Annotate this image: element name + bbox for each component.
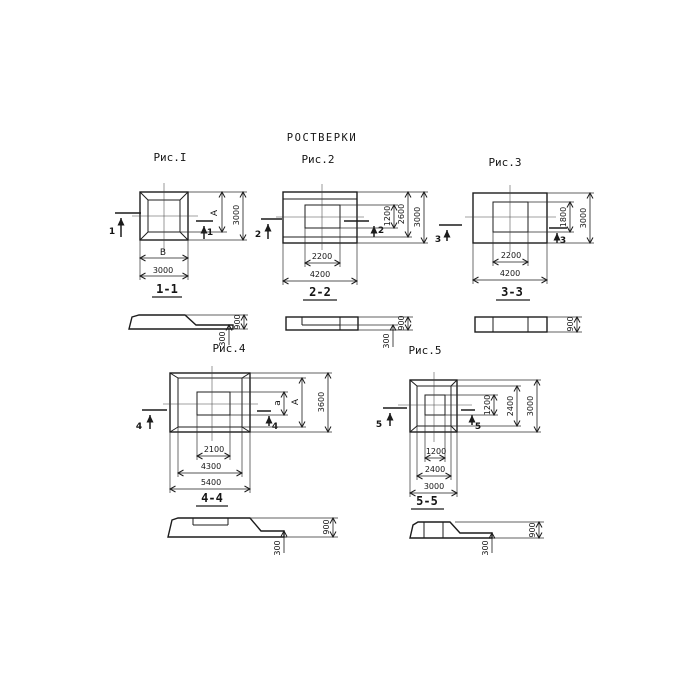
fig4-dim-right-middle: А xyxy=(291,398,301,405)
fig5-witness-lines xyxy=(410,380,541,497)
fig1-dim-bottom-outer: 3000 xyxy=(153,266,173,275)
fig4-cut-marks: 4 4 xyxy=(136,410,278,432)
fig2-dim-right-middle: 2600 xyxy=(397,204,406,224)
fig2-dim-bottom-outer: 4200 xyxy=(310,270,330,279)
fig2-section-recess xyxy=(302,317,340,330)
fig3-section-view: 900 xyxy=(475,316,582,332)
fig1-section-profile xyxy=(129,315,233,329)
fig3-dim-right-inner: 1800 xyxy=(559,207,568,227)
fig5-cut-marks: 5 5 xyxy=(376,408,481,432)
fig2-cut-label-left: 2 xyxy=(255,230,261,240)
fig5-cut-label-left: 5 xyxy=(376,420,382,430)
blueprint-canvas: РОСТВЕРКИ Рис.I 1 1 xyxy=(0,0,700,700)
fig5-section-view: 900 300 xyxy=(410,522,544,556)
fig4-cut-label-left: 4 xyxy=(136,422,142,432)
fig3-dimensions: 1800 3000 2200 4200 xyxy=(473,193,594,284)
fig2-section-title: 2-2 xyxy=(309,285,331,299)
fig4-dim-bottom-outer: 5400 xyxy=(201,478,221,487)
fig1-caption: Рис.I xyxy=(153,151,186,164)
fig1-dim-bottom-inner: В xyxy=(160,248,166,258)
fig5-dim-bottom-middle: 2400 xyxy=(425,465,445,474)
fig4-section-title: 4-4 xyxy=(201,491,223,505)
fig5-dim-right-inner: 1200 xyxy=(483,395,492,415)
fig2-cut-label-inner: 2 xyxy=(378,226,384,236)
fig2-centerlines xyxy=(276,184,364,250)
fig1-dim-right-inner: А xyxy=(210,209,220,216)
fig4-section-recess xyxy=(193,518,228,525)
fig4-dimensions: а А 3600 2100 4300 5400 xyxy=(170,373,332,493)
fig4-plan xyxy=(163,366,258,441)
fig1-section-total-height: 900 xyxy=(233,314,242,329)
fig1-cut-label-left: 1 xyxy=(109,227,115,237)
fig5-dimensions: 1200 2400 3000 1200 2400 3000 xyxy=(410,380,541,497)
fig3-section-profile xyxy=(475,317,547,332)
fig4-section-total-height: 900 xyxy=(322,519,331,534)
fig2-section-total-height: 900 xyxy=(397,315,406,330)
fig5-dim-bottom-inner: 1200 xyxy=(426,447,446,456)
fig1-dimensions: А 3000 В 3000 xyxy=(140,192,247,280)
fig3-witness-lines xyxy=(473,193,594,284)
fig5-dim-right-outer: 3000 xyxy=(526,396,535,416)
fig2-caption: Рис.2 xyxy=(301,153,334,166)
figure-5: Рис.5 5 5 xyxy=(376,344,544,556)
fig3-caption: Рис.3 xyxy=(488,156,521,169)
fig4-dim-bottom-inner: 2100 xyxy=(204,445,224,454)
fig3-section-title: 3-3 xyxy=(501,285,523,299)
fig2-outer-outline xyxy=(283,192,357,243)
fig1-section-title: 1-1 xyxy=(156,282,178,296)
figure-4: Рис.4 4 4 xyxy=(136,342,338,556)
fig2-inner-outline xyxy=(305,205,340,228)
fig5-plan xyxy=(398,372,472,442)
figure-3: Рис.3 3 3 1800 3000 xyxy=(435,156,594,332)
fig4-recess-outline xyxy=(197,392,230,415)
fig3-section-total-height: 900 xyxy=(566,316,575,331)
figure-1: Рис.I 1 1 А xyxy=(109,151,248,347)
fig4-caption: Рис.4 xyxy=(212,342,245,355)
fig1-cut-label-inner: 1 xyxy=(207,228,213,238)
fig5-dim-right-middle: 2400 xyxy=(506,396,515,416)
fig4-section-slab-height: 300 xyxy=(273,540,282,555)
fig2-plan xyxy=(276,184,364,250)
fig3-dim-bottom-inner: 2200 xyxy=(501,251,521,260)
fig5-cut-label-inner: 5 xyxy=(475,422,481,432)
fig5-caption: Рис.5 xyxy=(408,344,441,357)
fig3-cut-label-left: 3 xyxy=(435,235,441,245)
drawing-sheet: РОСТВЕРКИ Рис.I 1 1 xyxy=(0,0,700,700)
fig5-section-dividers xyxy=(424,522,443,538)
fig3-section-dividers xyxy=(493,317,528,332)
fig4-dim-right-inner: а xyxy=(273,400,283,406)
fig3-plan xyxy=(465,185,556,252)
fig4-corner-chamfers xyxy=(170,373,250,432)
fig4-inner-outline xyxy=(178,378,242,427)
fig2-dim-bottom-inner: 2200 xyxy=(312,252,332,261)
fig3-dim-right-outer: 3000 xyxy=(579,208,588,228)
fig5-section-title: 5-5 xyxy=(416,494,438,508)
fig3-dim-bottom-outer: 4200 xyxy=(500,269,520,278)
fig2-section-view: 900 300 xyxy=(286,315,413,348)
fig4-dim-bottom-middle: 4300 xyxy=(201,462,221,471)
fig2-dim-right-inner: 1200 xyxy=(383,206,392,226)
fig3-cut-label-inner: 3 xyxy=(560,236,566,246)
fig4-witness-lines xyxy=(170,373,332,493)
fig4-section-view: 900 300 xyxy=(168,518,338,556)
figure-2: Рис.2 2 2 xyxy=(255,153,428,349)
fig1-cut-marks: 1 1 xyxy=(109,213,213,239)
fig5-section-slab-height: 300 xyxy=(481,540,490,555)
fig1-dim-right-outer: 3000 xyxy=(232,205,241,225)
fig4-dim-right-outer: 3600 xyxy=(317,392,326,412)
fig2-section-slab-height: 300 xyxy=(382,333,391,348)
fig5-section-total-height: 900 xyxy=(528,522,537,537)
fig4-outer-outline xyxy=(170,373,250,432)
fig5-section-profile xyxy=(410,522,492,538)
fig4-section-profile xyxy=(168,518,284,537)
fig2-section-profile xyxy=(286,317,358,330)
fig5-dim-bottom-outer: 3000 xyxy=(424,482,444,491)
fig2-dim-right-outer: 3000 xyxy=(413,207,422,227)
fig3-centerlines xyxy=(465,185,556,252)
sheet-title: РОСТВЕРКИ xyxy=(287,132,357,144)
